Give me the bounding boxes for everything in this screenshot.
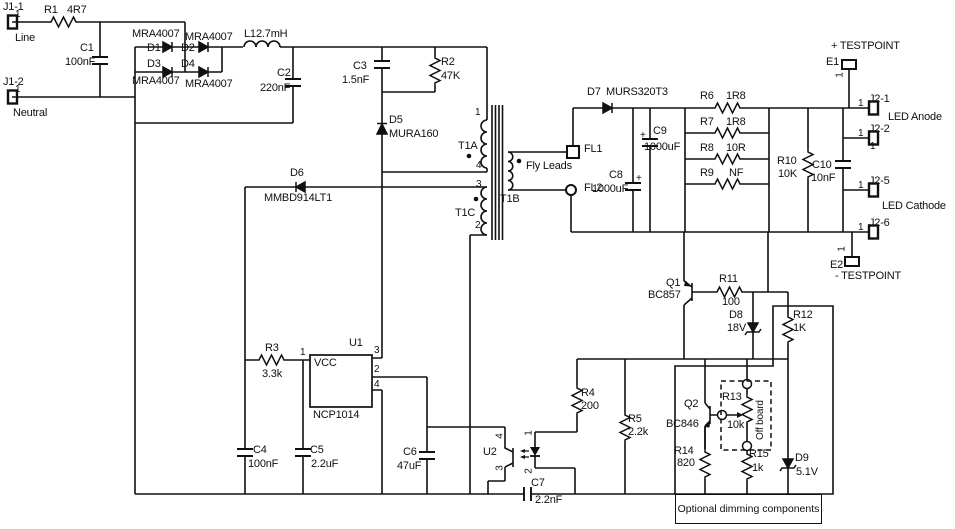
- resistor-r3-ref: R3: [265, 343, 279, 354]
- fly-lead-fl2: [566, 185, 576, 195]
- j2-6-pin: 1: [858, 223, 863, 233]
- e1-label: E1: [826, 57, 839, 68]
- c9-plus: +: [640, 131, 646, 141]
- capacitor-c1-value: 100nF: [65, 57, 95, 68]
- j2-2-pin: 1: [858, 129, 863, 139]
- schematic-page: Optional dimming components R14R7C1100nF…: [0, 0, 955, 529]
- resistor-r12-ref: R12: [793, 310, 813, 321]
- resistor-r1-value: 4R7: [67, 5, 87, 16]
- capacitor-c1-ref: C1: [80, 43, 94, 54]
- resistor-r2-ref: R2: [441, 57, 455, 68]
- t1a-polarity-dot: [467, 154, 472, 159]
- j2-1-pin: 1: [858, 99, 863, 109]
- diode-d1-part: MRA4007: [132, 29, 180, 40]
- zener-d9-symbol: [780, 459, 796, 471]
- diode-d1-symbol: [163, 42, 172, 52]
- inductor-l1-ref: L1: [244, 29, 256, 40]
- diode-d5-ref: D5: [389, 115, 403, 126]
- zener-d8-symbol: [745, 323, 761, 335]
- primary-side-wires: [12, 22, 675, 494]
- resistor-r8-value: 10R: [726, 143, 746, 154]
- resistor-r4-value: 200: [581, 401, 599, 412]
- fl2-label: FL2: [584, 183, 602, 194]
- resistor-r14-ref: R14: [674, 446, 694, 457]
- t1c-pin3: 3: [476, 180, 481, 190]
- resistor-r12-value: 1K: [793, 323, 806, 334]
- led-anode-label: LED Anode: [888, 112, 942, 123]
- transistor-q1-ref: Q1: [666, 278, 680, 289]
- transistor-q1-part: BC857: [648, 290, 681, 301]
- resistor-r4-ref: R4: [581, 388, 595, 399]
- u1-pin1: 1: [300, 348, 305, 358]
- connector-j1-1-label: J1-1: [3, 2, 24, 13]
- resistor-r7-ref: R7: [700, 117, 714, 128]
- resistor-r15-value: 1k: [752, 463, 763, 474]
- testpoint-e2-pad: [845, 257, 859, 266]
- ic-u1-ref: U1: [349, 338, 363, 349]
- off-board-label: Off board: [756, 400, 766, 440]
- e1-pin: 1: [836, 72, 846, 77]
- j2-2-pin-b: 1: [870, 142, 875, 152]
- resistor-r1-ref: R1: [44, 5, 58, 16]
- potentiometer-r13-value: 10k: [727, 420, 744, 431]
- resistor-r11-value: 100: [722, 297, 740, 308]
- u1-pin3: 3: [374, 346, 379, 356]
- c8-plus: +: [636, 174, 642, 184]
- resistor-r3-value: 3.3k: [262, 369, 282, 380]
- resistor-r14-value: 820: [677, 458, 695, 469]
- capacitor-c2-value: 220nF: [260, 83, 290, 94]
- fly-lead-fl1: [567, 146, 579, 158]
- diode-d2-ref: D2: [181, 43, 195, 54]
- u2-pin4: 4: [496, 433, 506, 438]
- capacitor-c2-ref: C2: [277, 68, 291, 79]
- u1-pin4: 4: [374, 380, 379, 390]
- capacitor-c4-ref: C4: [253, 445, 267, 456]
- u1-vcc-label: VCC: [314, 358, 337, 369]
- diode-d7-ref: D7: [587, 87, 601, 98]
- testpoint-plus-label: + TESTPOINT: [831, 41, 900, 52]
- fly-leads-label: Fly Leads: [526, 161, 572, 172]
- diode-d4-ref: D4: [181, 59, 195, 70]
- capacitor-c5-value: 2.2uF: [311, 459, 338, 470]
- diode-d3-ref: D3: [147, 59, 161, 70]
- capacitor-c10-ref: C10: [812, 160, 832, 171]
- transistor-q2-part: BC846: [666, 419, 699, 430]
- diode-d4-symbol: [199, 67, 208, 77]
- resistor-r6-value: 1R8: [726, 91, 746, 102]
- led-cathode-label: LED Cathode: [882, 201, 946, 212]
- capacitor-c9-ref: C9: [653, 126, 667, 137]
- j2-2-label: J2-2: [869, 124, 890, 135]
- transistor-q2-ref: Q2: [684, 399, 698, 410]
- diode-d8-value: 18V: [727, 323, 746, 334]
- resistor-r10-ref: R10: [777, 156, 797, 167]
- fl1-label: FL1: [584, 144, 602, 155]
- t1c-label: T1C: [455, 208, 475, 219]
- capacitor-c8-ref: C8: [609, 170, 623, 181]
- diode-d5-symbol: [377, 124, 387, 135]
- capacitor-c10-value: 10nF: [811, 173, 835, 184]
- diode-d9-ref: D9: [795, 453, 809, 464]
- diode-d6-ref: D6: [290, 168, 304, 179]
- capacitor-c7-value: 2.2nF: [535, 495, 562, 506]
- u2-pin3: 3: [496, 465, 506, 470]
- neutral-label: Neutral: [13, 108, 47, 119]
- resistor-r10-value: 10K: [778, 169, 797, 180]
- connector-j1-2-label: J1-2: [3, 77, 24, 88]
- line-label: Line: [15, 33, 35, 44]
- potentiometer-r13-ref: R13: [722, 392, 742, 403]
- capacitor-c6-ref: C6: [403, 447, 417, 458]
- diode-d5-part: MURA160: [389, 129, 438, 140]
- resistor-r2-value: 47K: [441, 71, 460, 82]
- optocoupler-u2-ref: U2: [483, 447, 497, 458]
- t1b-polarity-dot: [517, 159, 522, 164]
- resistor-r5-ref: R5: [628, 414, 642, 425]
- transistor-q2-symbol: [705, 403, 711, 449]
- testpoint-e1-pad: [842, 60, 856, 69]
- resistor-r7-value: 1R8: [726, 117, 746, 128]
- j2-5-pin: 1: [858, 181, 863, 191]
- diode-d7-symbol: [603, 103, 612, 113]
- capacitor-c3-value: 1.5nF: [342, 75, 369, 86]
- diode-d6-part: MMBD914LT1: [264, 193, 332, 204]
- diode-d7-part: MURS320T3: [606, 87, 668, 98]
- j2-5-label: J2-5: [869, 176, 890, 187]
- capacitor-c7-ref: C7: [531, 478, 545, 489]
- j2-1-label: J2-1: [869, 94, 890, 105]
- inductor-l1-symbol: [244, 41, 280, 47]
- capacitor-c4-value: 100nF: [248, 459, 278, 470]
- testpoint-minus-label: - TESTPOINT: [835, 271, 901, 282]
- diode-d6-symbol: [296, 182, 305, 192]
- resistor-r6-ref: R6: [700, 91, 714, 102]
- t1c-polarity-dot: [474, 197, 479, 202]
- resistor-r9-ref: R9: [700, 168, 714, 179]
- t1c-pin2: 2: [475, 221, 480, 231]
- optional-dimming-caption: Optional dimming components: [678, 503, 820, 515]
- capacitor-c6-value: 47uF: [397, 461, 421, 472]
- t1a-label: T1A: [458, 141, 478, 152]
- resistor-r15-ref: R15: [749, 449, 769, 460]
- u2-pin2: 2: [525, 468, 535, 473]
- transistor-q1-symbol: [684, 281, 692, 360]
- diode-d4-part: MRA4007: [185, 79, 233, 90]
- connector-j1-2-pin: 1: [15, 85, 20, 95]
- diode-d8-ref: D8: [729, 310, 743, 321]
- capacitor-c9-value: 1000uF: [644, 142, 680, 153]
- t1a-pin4: 4: [476, 161, 481, 171]
- inductor-l1-value: 2.7mH: [256, 29, 287, 40]
- ic-u1-part: NCP1014: [313, 410, 359, 421]
- u2-pin1: 1: [525, 430, 535, 435]
- capacitor-c3-ref: C3: [353, 61, 367, 72]
- u1-pin2: 2: [374, 365, 379, 375]
- resistor-r9-value: NF: [729, 168, 743, 179]
- connectors: [8, 16, 878, 267]
- diode-d1-ref: D1: [147, 43, 161, 54]
- resistor-r5-value: 2.2k: [628, 427, 648, 438]
- diode-d2-part: MRA4007: [185, 32, 233, 43]
- offboard-terminal-wiper: [718, 411, 727, 420]
- resistor-r8-ref: R8: [700, 143, 714, 154]
- j2-6-label: J2-6: [869, 218, 890, 229]
- optional-dimming-caption-box: Optional dimming components: [675, 494, 822, 524]
- diode-d2-symbol: [199, 42, 208, 52]
- t1a-pin1: 1: [475, 108, 480, 118]
- diode-d3-part: MRA4007: [132, 76, 180, 87]
- capacitor-c5-ref: C5: [310, 445, 324, 456]
- connector-j1-1-pin: 1: [15, 10, 20, 20]
- diode-d9-value: 5.1V: [796, 467, 818, 478]
- t1b-label: T1B: [500, 194, 520, 205]
- e2-pin: 1: [838, 246, 848, 251]
- resistor-r11-ref: R11: [719, 274, 738, 285]
